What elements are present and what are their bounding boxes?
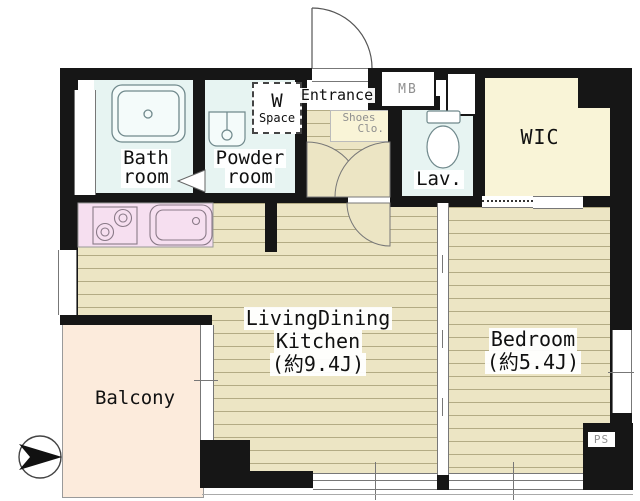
ldk-label-line1: LivingDining [244,307,393,330]
wall-lav-left [388,110,402,196]
partition-panel-mark-1 [442,255,443,273]
meter-box-label: MB [398,82,418,97]
wic-dotted-line [482,200,533,202]
washer-space-label-2: Space [257,112,297,124]
entrance-opening [312,68,368,82]
wall-top-wic [483,68,585,78]
wall-ldk-corner-L1 [200,440,250,488]
entrance-label-text: Entrance [299,88,375,103]
compass-icon [19,436,62,478]
shoes-closet-label: Shoes Clo. [332,112,386,134]
washer-space: W Space [252,82,302,134]
entrance-door-arc [312,8,372,68]
tick-right-window [608,372,634,373]
ldk-bedroom-partition [437,203,449,475]
wic-open-section [482,196,533,208]
lavatory-label-text: Lav. [414,170,464,189]
floorplan: MB W Space [0,0,640,501]
window-bedroom-bottom-track [449,480,583,481]
wall-bedroom-top-b [583,196,613,207]
pipe-space-label-text: PS [594,433,609,446]
lavatory-label: Lav. [408,170,470,189]
entrance-label: Entrance [302,88,372,103]
shaft-box [446,72,477,116]
ldk-label-line2: Kitchen [274,330,362,353]
ldk-label-line3: (約9.4J) [270,353,366,376]
partition-panel-mark-2 [442,330,443,348]
meter-box: MB [380,70,436,108]
powder-label-line2: room [225,168,275,187]
wall-hall-ldk [277,193,348,203]
shoes-label-line2: Clo. [356,123,387,134]
bedroom-label: Bedroom (約5.4J) [463,328,603,374]
wic-sliding-door [533,196,583,209]
wall-balcony-top [68,315,212,325]
window-bedroom-bottom [449,473,583,490]
washer-space-label-1: W [269,92,284,111]
window-ldk-left [58,250,77,315]
balcony-label: Balcony [85,389,185,408]
balcony-label-text: Balcony [93,389,177,408]
wall-bedroom-top-a [449,196,482,207]
room-powder-label: Powder room [203,149,297,188]
room-bath-label: Bath room [96,149,196,188]
ldk-label: LivingDining Kitchen (約9.4J) [238,307,398,376]
balcony-floor [62,322,204,498]
wall-kitchen-stub [265,193,277,252]
bottom-outer-line [202,494,633,495]
window-bath-left [74,90,96,195]
pipe-space-label: PS [588,432,615,447]
bedroom-label-line1: Bedroom [489,328,577,351]
wall-ldk-corner-L2 [250,471,313,488]
partition-panel-mark-3 [442,398,443,416]
tick-balcony-door [194,380,218,381]
wall-right [610,68,632,478]
bedroom-label-line2: (約5.4J) [485,351,581,374]
wic-label: WIC [490,127,590,147]
balcony-sliding-door [200,325,214,440]
bath-label-line2: room [121,168,171,187]
wall-top-left [60,68,312,80]
wic-label-text: WIC [518,127,561,147]
